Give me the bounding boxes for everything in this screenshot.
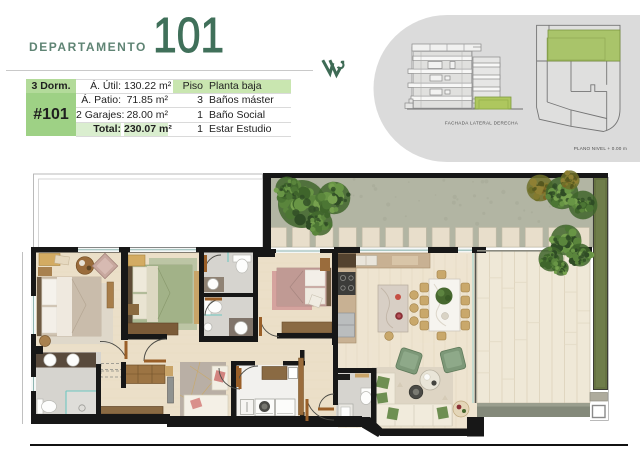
svg-text:PLANO NIVEL + 0.00 m: PLANO NIVEL + 0.00 m (574, 146, 627, 151)
svg-text:FACHADA LATERAL DERECHA: FACHADA LATERAL DERECHA (445, 121, 519, 126)
